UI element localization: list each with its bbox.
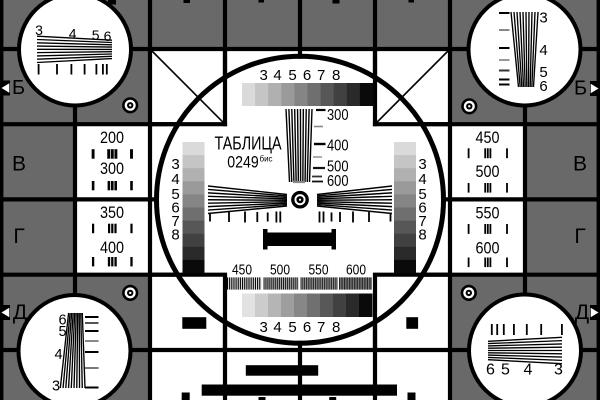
svg-text:В: В xyxy=(12,153,26,176)
svg-text:450: 450 xyxy=(232,263,252,279)
svg-text:В: В xyxy=(573,153,587,176)
svg-text:4: 4 xyxy=(273,67,281,84)
svg-text:600: 600 xyxy=(346,263,366,279)
svg-text:450: 450 xyxy=(476,129,500,147)
svg-text:6: 6 xyxy=(303,319,311,336)
svg-text:0249: 0249 xyxy=(227,153,259,172)
svg-text:5: 5 xyxy=(501,362,510,379)
svg-text:Д: Д xyxy=(13,301,27,324)
svg-text:5: 5 xyxy=(92,27,100,43)
svg-text:Д: Д xyxy=(575,301,589,324)
svg-text:400: 400 xyxy=(327,138,349,155)
svg-text:4: 4 xyxy=(273,319,281,336)
svg-text:Б: Б xyxy=(574,78,587,100)
svg-text:7: 7 xyxy=(317,319,325,336)
svg-text:3: 3 xyxy=(52,379,60,395)
svg-text:8: 8 xyxy=(332,67,340,84)
svg-text:8: 8 xyxy=(418,227,426,244)
svg-text:5: 5 xyxy=(288,319,296,336)
svg-text:3: 3 xyxy=(260,319,268,336)
svg-text:3: 3 xyxy=(554,362,563,379)
svg-text:8: 8 xyxy=(332,319,340,336)
svg-text:Б: Б xyxy=(12,77,25,99)
svg-text:бис: бис xyxy=(260,155,273,164)
svg-text:7: 7 xyxy=(317,67,325,84)
svg-text:5: 5 xyxy=(58,324,66,340)
svg-text:6: 6 xyxy=(303,67,311,84)
svg-text:5: 5 xyxy=(288,67,296,84)
svg-text:4: 4 xyxy=(539,42,547,59)
svg-text:500: 500 xyxy=(270,263,290,279)
svg-text:600: 600 xyxy=(327,173,349,190)
svg-text:6: 6 xyxy=(486,362,495,379)
svg-text:500: 500 xyxy=(476,163,500,181)
svg-text:8: 8 xyxy=(171,227,179,244)
svg-text:400: 400 xyxy=(100,239,124,257)
svg-text:350: 350 xyxy=(100,204,124,222)
svg-text:300: 300 xyxy=(327,107,349,124)
svg-text:3: 3 xyxy=(260,67,268,84)
svg-text:550: 550 xyxy=(309,263,329,279)
svg-text:Г: Г xyxy=(574,225,585,248)
svg-text:550: 550 xyxy=(476,205,500,223)
svg-text:4: 4 xyxy=(54,347,62,363)
svg-text:6: 6 xyxy=(104,28,112,44)
svg-text:6: 6 xyxy=(539,78,547,95)
svg-text:300: 300 xyxy=(100,160,124,178)
svg-text:4: 4 xyxy=(524,362,533,379)
svg-text:600: 600 xyxy=(476,240,500,258)
svg-text:Г: Г xyxy=(13,225,24,248)
svg-text:4: 4 xyxy=(69,26,77,42)
svg-text:200: 200 xyxy=(100,129,124,147)
svg-text:3: 3 xyxy=(35,22,43,38)
svg-text:3: 3 xyxy=(539,10,547,27)
svg-text:ТАБЛИЦА: ТАБЛИЦА xyxy=(215,133,283,154)
